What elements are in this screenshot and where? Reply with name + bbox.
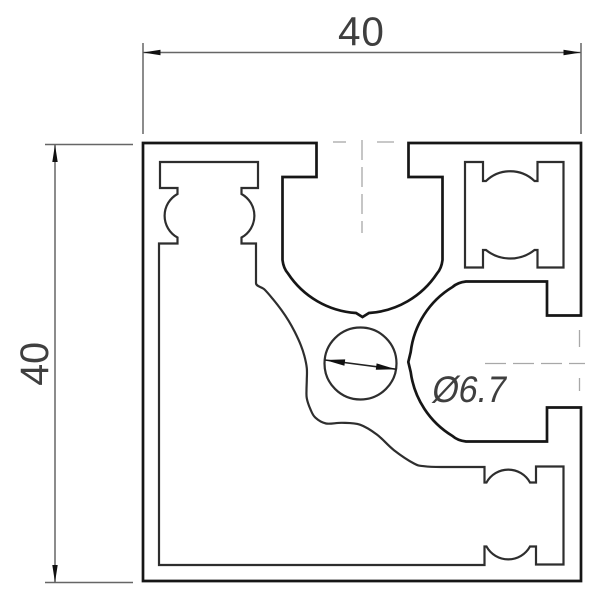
svg-text:40: 40 bbox=[338, 9, 385, 55]
svg-text:Ø6.7: Ø6.7 bbox=[429, 369, 510, 410]
svg-text:40: 40 bbox=[13, 342, 57, 386]
